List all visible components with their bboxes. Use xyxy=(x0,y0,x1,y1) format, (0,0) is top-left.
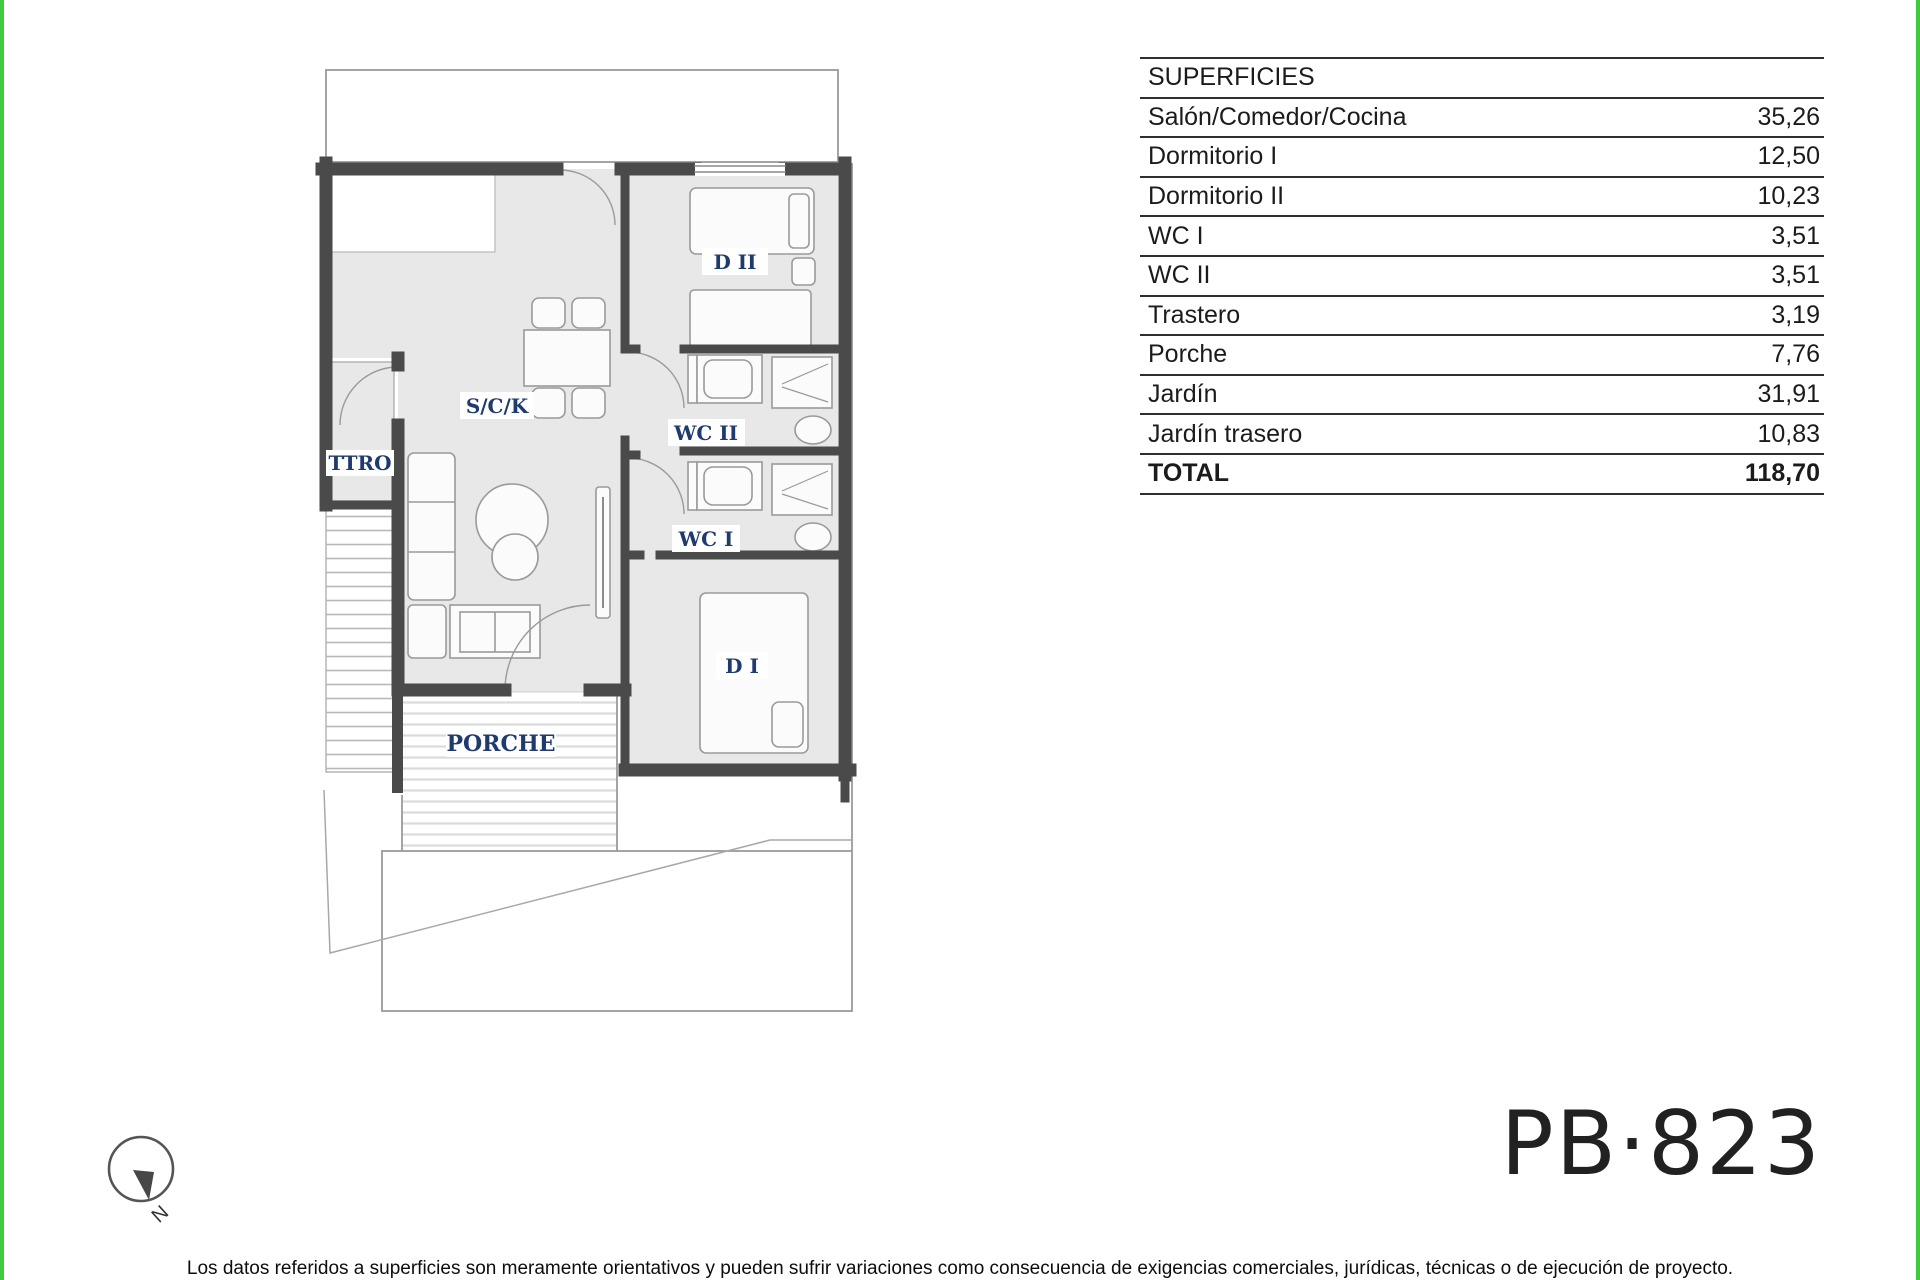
exterior-stairs xyxy=(326,505,396,772)
row-value: 31,91 xyxy=(1757,382,1824,407)
row-value: 10,83 xyxy=(1757,422,1824,447)
table-total-row: TOTAL 118,70 xyxy=(1140,455,1824,495)
table-row: Jardín trasero 10,83 xyxy=(1140,415,1824,455)
compass-needle xyxy=(133,1170,154,1200)
row-label: Dormitorio II xyxy=(1140,184,1284,209)
table-header-row: SUPERFICIES xyxy=(1140,57,1824,99)
pillow xyxy=(789,194,809,248)
dining-chair xyxy=(532,298,565,328)
wc1-basin xyxy=(704,467,752,505)
porch-decking xyxy=(402,690,617,848)
row-label: Jardín trasero xyxy=(1140,422,1302,447)
total-value: 118,70 xyxy=(1745,461,1824,486)
row-value: 10,23 xyxy=(1757,184,1824,209)
wc1-counter-panel xyxy=(688,462,697,510)
table-row: WC II 3,51 xyxy=(1140,257,1824,297)
table-row: Jardín 31,91 xyxy=(1140,376,1824,416)
table-row: Dormitorio II 10,23 xyxy=(1140,178,1824,218)
table-row: Salón/Comedor/Cocina 35,26 xyxy=(1140,99,1824,139)
table-row: Trastero 3,19 xyxy=(1140,297,1824,337)
wc2-toilet xyxy=(795,416,831,444)
row-label: Salón/Comedor/Cocina xyxy=(1140,105,1406,130)
wc2-counter-panel xyxy=(688,355,697,403)
bedside-table xyxy=(792,258,815,285)
dining-chair xyxy=(532,388,565,418)
coffee-table-small xyxy=(492,534,538,580)
kitchen-zone xyxy=(326,169,495,252)
plan-code: PB·823 xyxy=(1501,1092,1822,1195)
row-value: 35,26 xyxy=(1757,105,1824,130)
armchair xyxy=(408,605,446,658)
row-value: 7,76 xyxy=(1771,342,1824,367)
disclaimer-text: Los datos referidos a superficies son me… xyxy=(0,1258,1920,1280)
label-dormitorio1: D I xyxy=(725,654,759,678)
dining-chair xyxy=(572,388,605,418)
table-row: WC I 3,51 xyxy=(1140,217,1824,257)
row-label: Dormitorio I xyxy=(1140,144,1277,169)
dining-table xyxy=(524,330,610,386)
total-label: TOTAL xyxy=(1140,461,1229,486)
compass-circle xyxy=(109,1137,173,1201)
north-compass: N xyxy=(109,1137,173,1227)
row-label: WC I xyxy=(1140,224,1204,249)
dining-chair xyxy=(572,298,605,328)
table-row: Dormitorio I 12,50 xyxy=(1140,138,1824,178)
wc2-basin xyxy=(704,360,752,398)
trastero-floor xyxy=(330,362,394,501)
row-value: 3,51 xyxy=(1771,263,1824,288)
table-header: SUPERFICIES xyxy=(1140,65,1315,90)
pillow xyxy=(772,702,803,747)
label-wc1: WC I xyxy=(678,527,734,551)
row-label: WC II xyxy=(1140,263,1211,288)
sofa xyxy=(408,453,455,600)
row-label: Jardín xyxy=(1140,382,1217,407)
compass-n-letter: N xyxy=(148,1201,173,1227)
plan-sheet: { "colors": { "accent_green": "#3ecb3e",… xyxy=(0,0,1920,1280)
front-garden xyxy=(382,851,852,1011)
table-row: Porche 7,76 xyxy=(1140,336,1824,376)
row-value: 3,19 xyxy=(1771,303,1824,328)
surfaces-table: SUPERFICIES Salón/Comedor/Cocina 35,26 D… xyxy=(1140,57,1824,495)
label-porche: PORCHE xyxy=(446,731,555,757)
label-trastero: TTRO xyxy=(328,451,391,475)
label-dormitorio2: D II xyxy=(713,250,756,274)
label-wc2: WC II xyxy=(673,421,738,445)
back-garden xyxy=(326,70,838,162)
bed-single-d2 xyxy=(690,290,811,347)
wc1-toilet xyxy=(795,523,831,551)
row-label: Trastero xyxy=(1140,303,1240,328)
porch-pillar xyxy=(392,690,403,793)
row-value: 3,51 xyxy=(1771,224,1824,249)
row-value: 12,50 xyxy=(1757,144,1824,169)
row-label: Porche xyxy=(1140,342,1227,367)
label-salon: S/C/K xyxy=(466,394,529,418)
